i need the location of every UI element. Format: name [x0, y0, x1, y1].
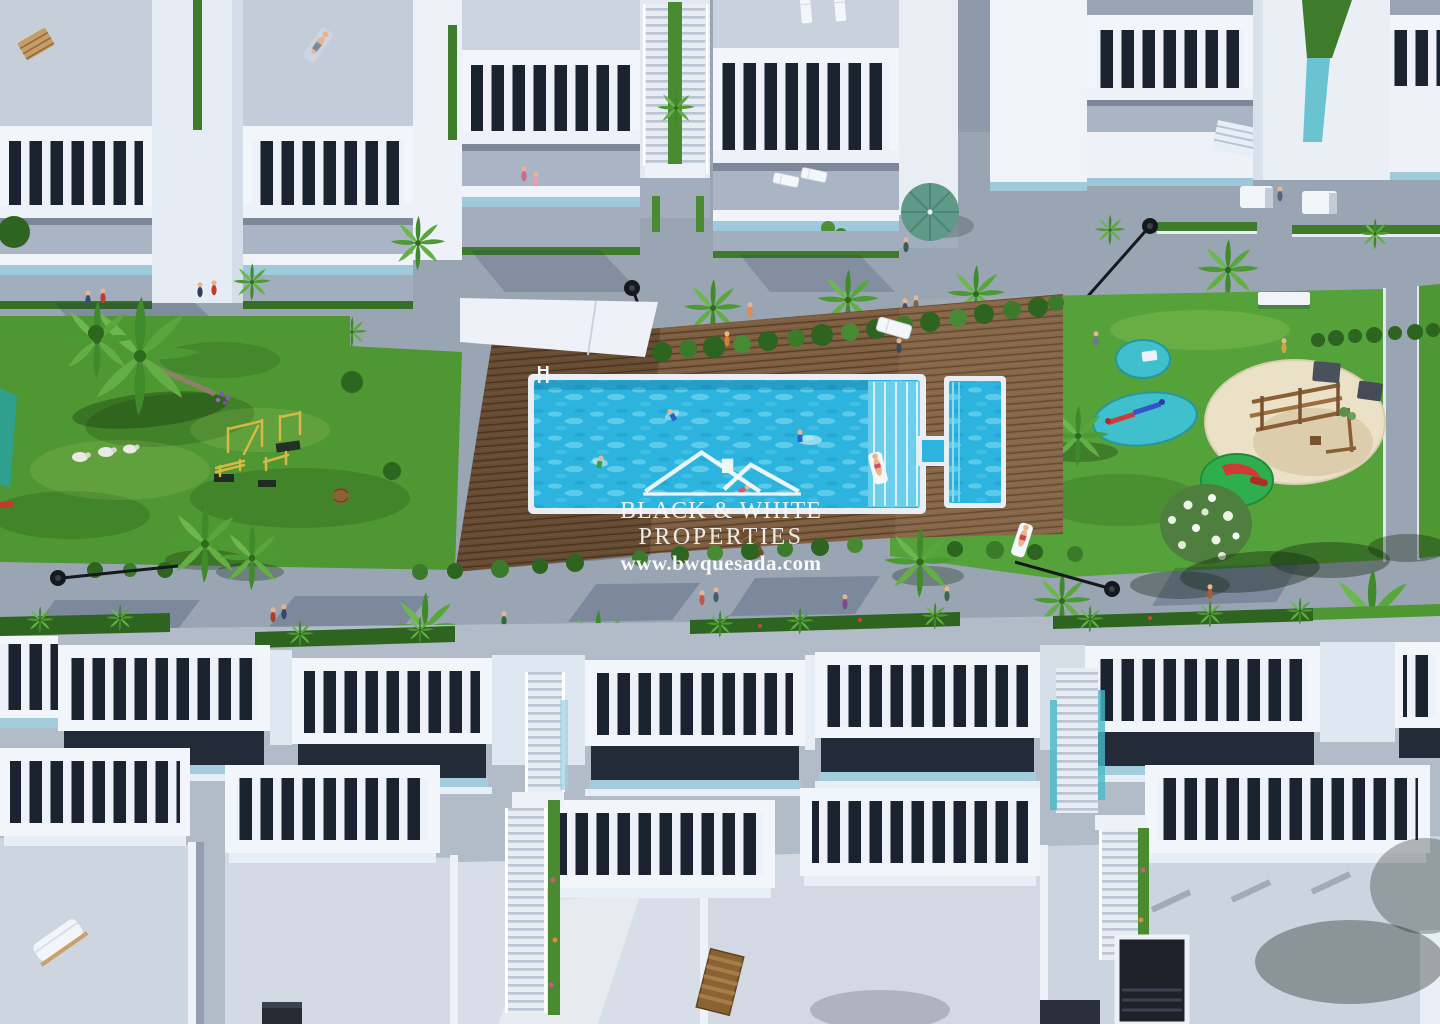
aerial-render-canvas: BLACK & WHITE PROPERTIES www.bwquesada.c…	[0, 0, 1440, 1024]
rooftop	[0, 838, 190, 1024]
apartment-block	[462, 0, 640, 255]
apartment-block	[1087, 15, 1277, 186]
apartment-block	[1390, 15, 1440, 180]
pool-steps	[868, 381, 920, 507]
flower-bush	[1160, 484, 1252, 564]
roof-stairwell	[1117, 937, 1187, 1024]
pool-deck	[455, 294, 1064, 572]
garden-bench	[1258, 292, 1310, 305]
rooftop-stairs	[640, 0, 710, 232]
apartment-block	[0, 0, 152, 309]
residential-complex-render	[0, 0, 1440, 1024]
apartment-block	[713, 0, 899, 258]
rooftop	[225, 850, 450, 1024]
apartment-block	[243, 0, 413, 309]
red-bench	[0, 502, 14, 508]
bottom-building-rows	[0, 597, 1440, 1024]
swimming-pool	[528, 366, 926, 514]
log-pile	[333, 488, 350, 505]
vertical-hedge	[193, 0, 202, 130]
kids-pool	[944, 376, 1006, 508]
roof-hatch	[1040, 1000, 1100, 1024]
